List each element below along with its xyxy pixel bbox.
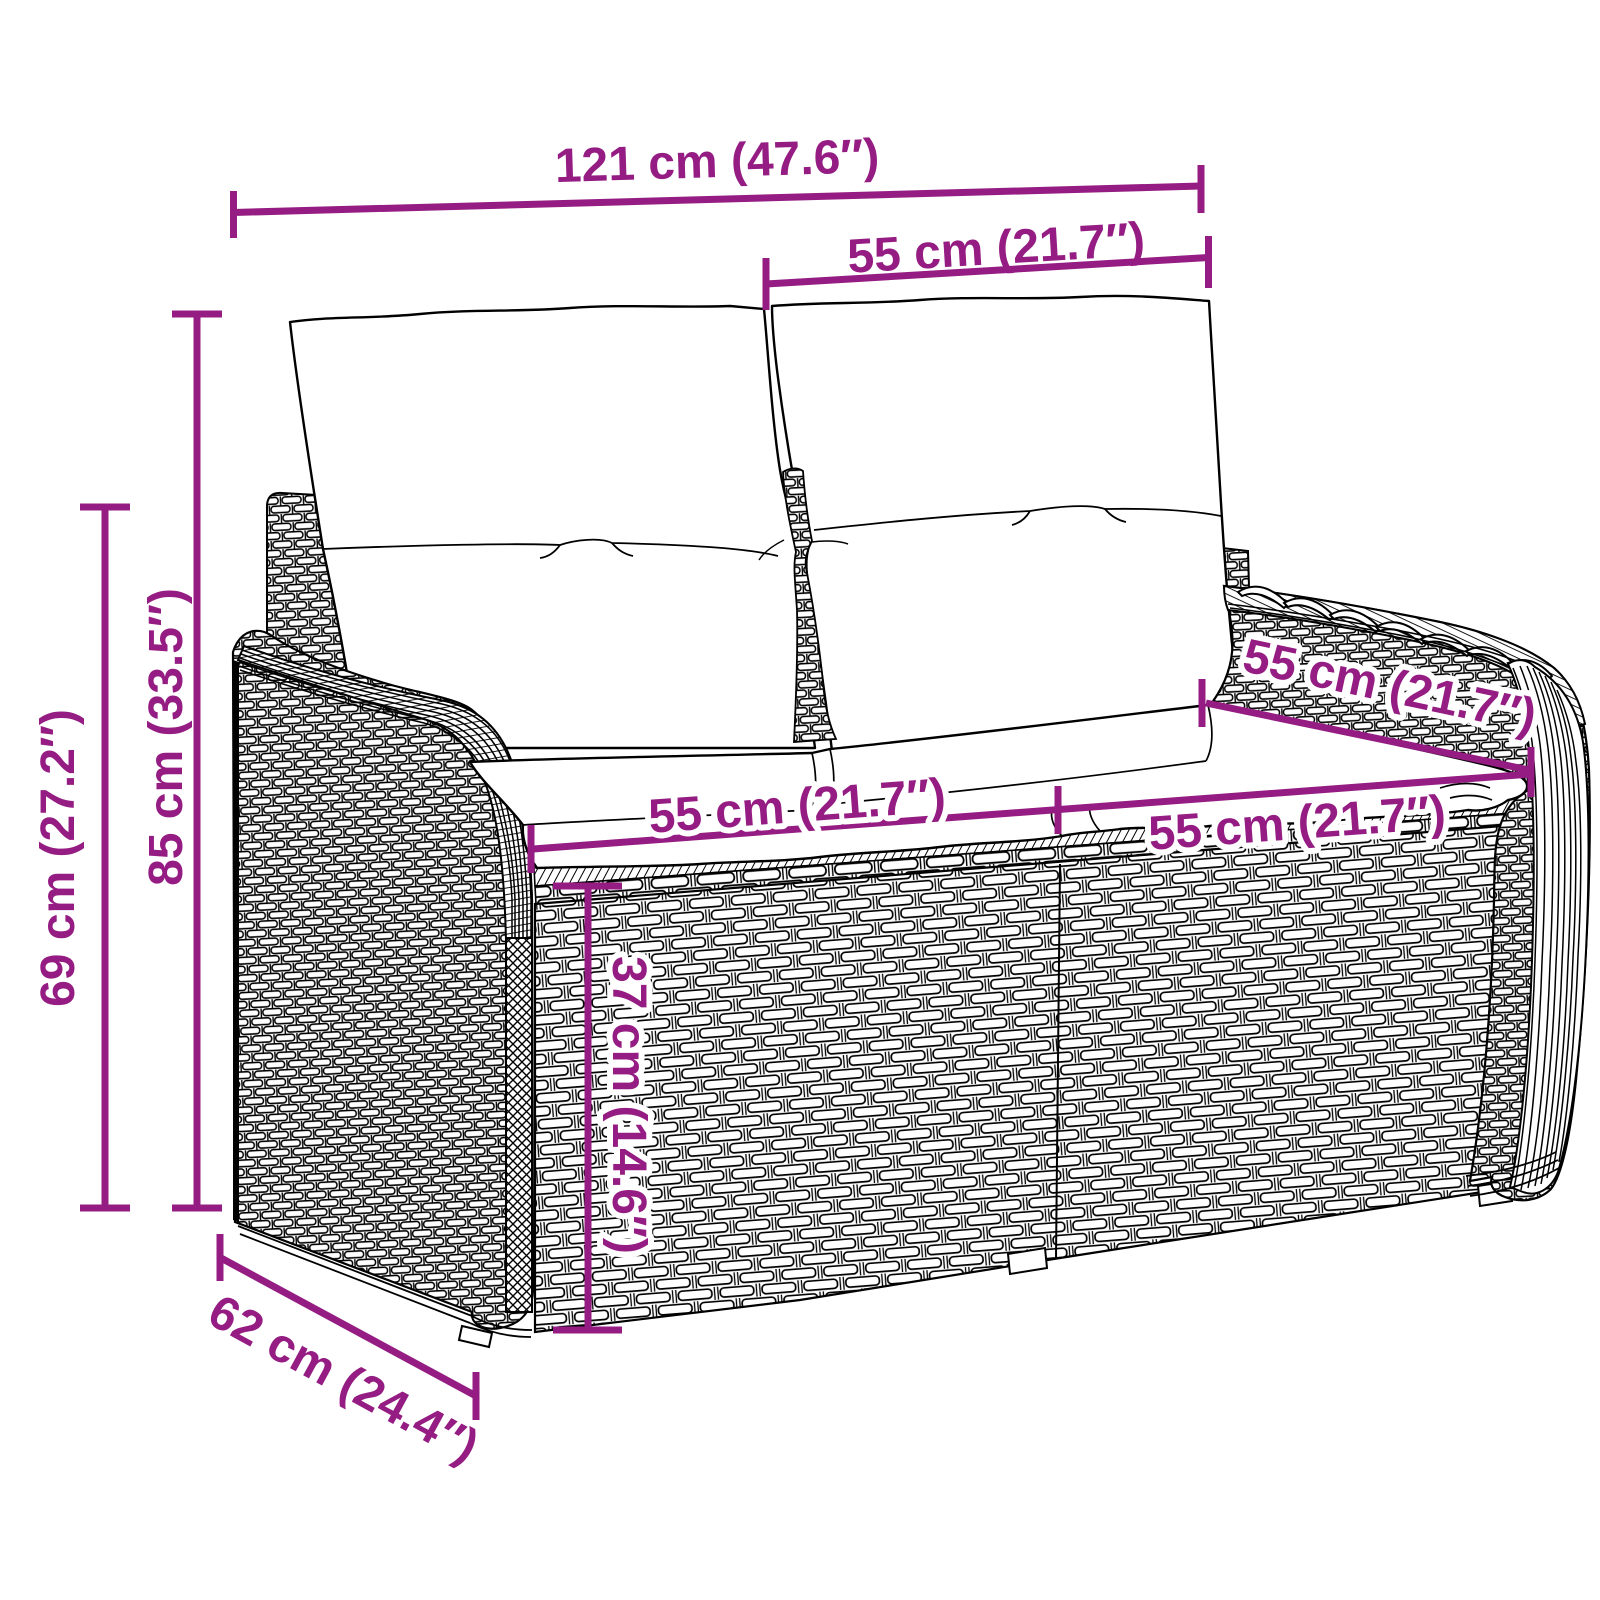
svg-text:37 cm (14.6″): 37 cm (14.6″) xyxy=(602,956,655,1254)
svg-text:69 cm (27.2″): 69 cm (27.2″) xyxy=(32,709,85,1007)
svg-text:85 cm (33.5″): 85 cm (33.5″) xyxy=(140,588,193,886)
svg-text:121 cm (47.6″): 121 cm (47.6″) xyxy=(554,130,880,193)
